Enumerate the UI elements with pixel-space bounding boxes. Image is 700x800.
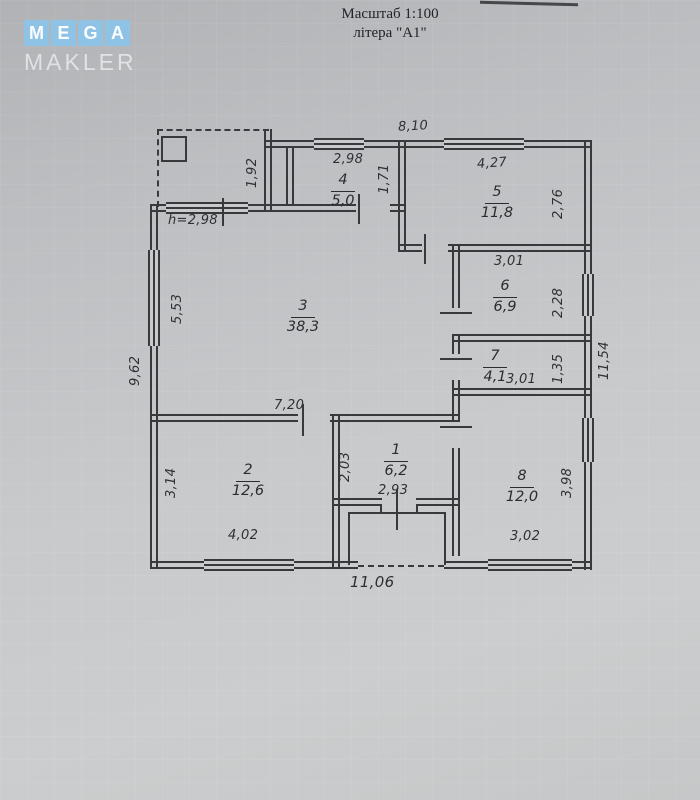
corner-pier (161, 136, 187, 162)
dim-room7-width: 3,01 (506, 372, 536, 387)
room-number: 5 (485, 185, 508, 204)
wall-room4-room5 (398, 140, 406, 252)
room-number: 6 (493, 279, 516, 298)
window-room8-bottom (488, 559, 572, 571)
room-label-5: 5 11,8 (475, 182, 519, 222)
room-label-6: 6 6,9 (483, 276, 527, 316)
logo-subtitle: MAKLER (24, 49, 137, 76)
wall-room6-bottom (452, 334, 592, 342)
room-area: 11,8 (475, 206, 519, 222)
dim-room2-width: 4,02 (228, 528, 258, 543)
dim-bottom-total: 11,06 (350, 573, 394, 591)
wall-room7-bottom (452, 388, 592, 396)
dim-room7-depth: 1,35 (551, 350, 566, 388)
dim-room6-width: 3,01 (494, 254, 524, 269)
room-area: 38,3 (281, 320, 325, 336)
floor-plan-photo: M E G A MAKLER Масштаб 1:100 літера "А1" (0, 0, 700, 800)
room-number: 4 (331, 173, 354, 192)
dim-room5-depth: 2,76 (551, 183, 566, 225)
logo-tile: A (105, 20, 130, 46)
wall-room4-left (286, 146, 294, 204)
wall-right-exterior (584, 140, 592, 570)
room-label-4: 4 5,0 (321, 170, 365, 210)
window-room2-bottom (204, 559, 294, 571)
room-area: 6,2 (374, 464, 418, 480)
room-label-1: 1 6,2 (374, 440, 418, 480)
dim-room1-width: 2,93 (378, 483, 408, 498)
room-label-2: 2 12,6 (226, 460, 270, 500)
porch-step (416, 506, 418, 514)
dim-room4-depth: 1,71 (377, 160, 392, 198)
window-room3-left (148, 250, 160, 346)
dim-veranda-side: 1,92 (245, 152, 260, 194)
window-room4-top (314, 138, 364, 150)
document-edge-line (480, 1, 578, 6)
drawing-header: Масштаб 1:100 літера "А1" (295, 4, 485, 42)
dim-room8-width: 3,02 (510, 529, 540, 544)
dim-left-side-total: 9,62 (128, 348, 143, 394)
mega-makler-logo: M E G A MAKLER (24, 20, 137, 76)
porch-open-edge (358, 565, 444, 567)
room-label-8: 8 12,0 (500, 466, 544, 506)
dim-room4-width: 2,98 (333, 152, 363, 167)
wall-room1-bottom (416, 498, 460, 506)
dim-top-width: 8,10 (398, 118, 429, 135)
room-area: 12,6 (226, 484, 270, 500)
window-room8-right (582, 418, 594, 462)
litera-text: літера "А1" (295, 25, 485, 42)
door-mark-room5 (424, 234, 426, 264)
room-number: 1 (384, 443, 407, 462)
wall-room2-room1 (332, 414, 340, 569)
scale-text: Масштаб 1:100 (295, 6, 485, 23)
room-number: 3 (291, 299, 314, 318)
room-area: 6,9 (483, 300, 527, 316)
room-label-3: 3 38,3 (281, 296, 325, 336)
room-number: 7 (483, 349, 506, 368)
wall-room5-bottom (398, 244, 422, 252)
logo-tile: E (51, 20, 76, 46)
dim-room6-depth: 2,28 (551, 282, 566, 324)
dim-room3-width: 7,20 (274, 398, 304, 413)
window-room5-top (444, 138, 524, 150)
logo-tile: G (78, 20, 103, 46)
dim-room5-width: 4,27 (477, 155, 508, 172)
porch-step (380, 506, 382, 514)
veranda-dashed-top (157, 129, 269, 131)
room-area: 5,0 (321, 194, 365, 210)
dim-room8-depth: 3,98 (560, 460, 575, 506)
dim-room3-side: 5,53 (170, 286, 185, 332)
door-mark-room7 (440, 358, 472, 360)
graph-paper-grid (0, 0, 700, 800)
logo-tiles: M E G A (24, 20, 137, 46)
dim-room2-depth: 3,14 (164, 460, 179, 506)
dim-height-note: h=2,98 (168, 213, 218, 228)
logo-tile: M (24, 20, 49, 46)
dim-room1-depth: 2,03 (338, 446, 353, 488)
wall-room5-bottom (448, 244, 592, 252)
room-area: 12,0 (500, 490, 544, 506)
wall-hall-right (452, 244, 460, 308)
dim-right-side-total: 11,54 (597, 328, 612, 394)
wall-room1-bottom (332, 498, 382, 506)
window-room6-right (582, 274, 594, 316)
veranda-dashed-left (157, 129, 159, 207)
door-mark-room8 (440, 426, 472, 428)
wall-room3-bottom (330, 414, 460, 422)
window-divider-mark (222, 198, 224, 226)
room-number: 8 (510, 469, 533, 488)
room-number: 2 (236, 463, 259, 482)
wall-room3-bottom (150, 414, 298, 422)
door-mark-room6 (440, 312, 472, 314)
